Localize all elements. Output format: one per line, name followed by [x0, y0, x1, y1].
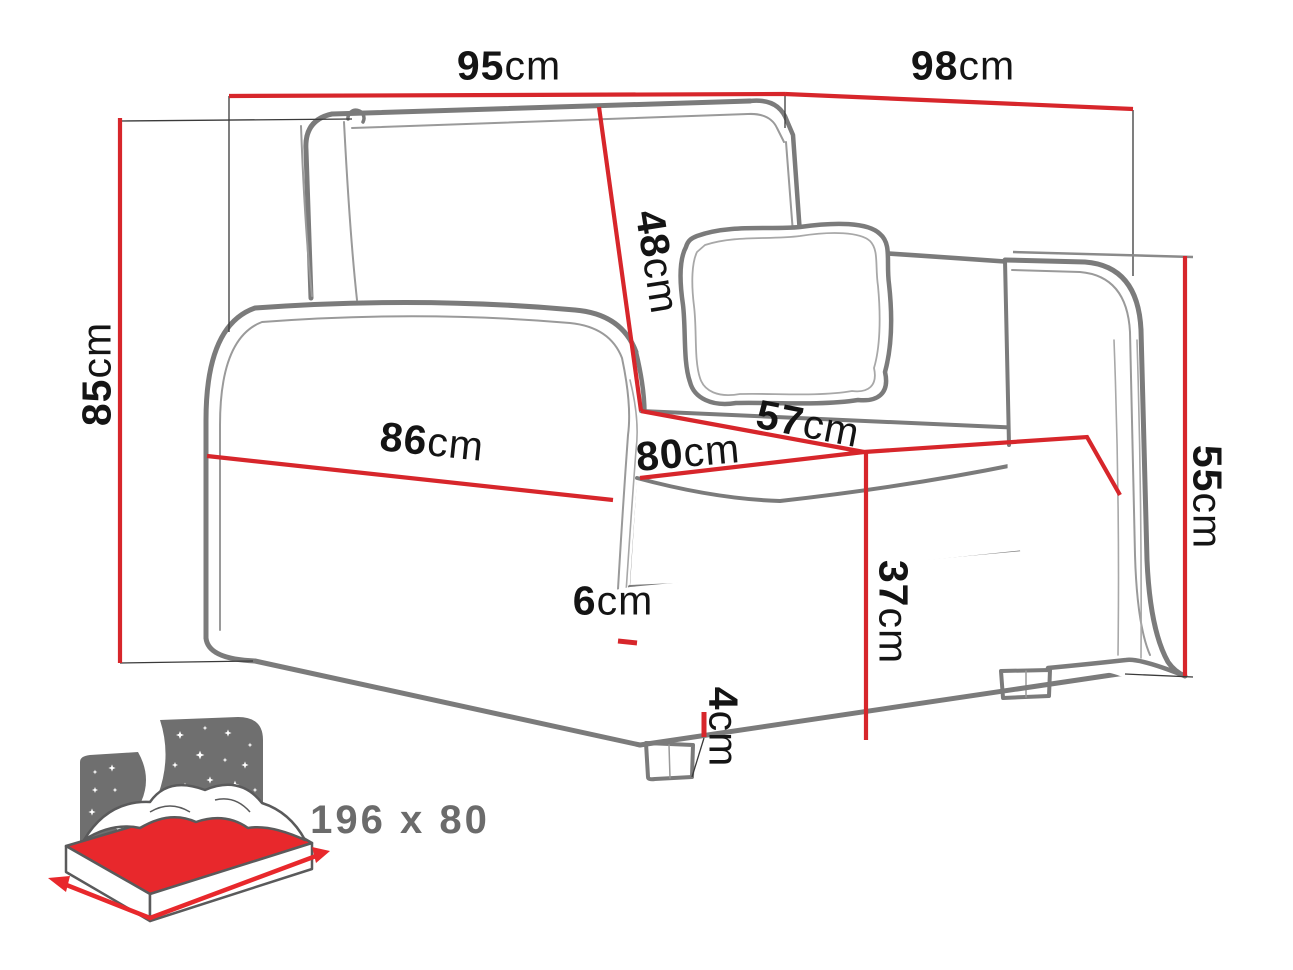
dim-total-height-label: 85cm	[77, 322, 118, 426]
dim-front-bottom-width-label: 86cm	[378, 416, 486, 468]
dim-side-gap-value: 6	[573, 578, 597, 624]
dim-seat-height-unit: cm	[871, 607, 917, 664]
dim-armrest-height-unit: cm	[1185, 492, 1231, 549]
dim-side-gap-unit: cm	[597, 578, 654, 624]
dim-seat-depth-label: 80cm	[634, 428, 741, 478]
dim-leg-height-label: 4cm	[703, 687, 744, 767]
dim-leg-height-value: 4	[701, 687, 747, 711]
dimension-line-front-width	[229, 94, 785, 96]
dim-leg-height-unit: cm	[701, 711, 747, 768]
dim-backrest-height-value: 48	[627, 207, 680, 261]
dim-front-width-unit: cm	[504, 43, 561, 89]
dim-seat-height-value: 37	[871, 560, 917, 608]
dim-front-bottom-width-unit: cm	[425, 418, 486, 470]
sleeping-dimensions-label: 196 x 80	[310, 800, 490, 840]
dim-total-height-unit: cm	[74, 322, 120, 379]
dim-total-height-value: 85	[74, 379, 120, 427]
dim-seat-depth-unit: cm	[681, 425, 741, 476]
dimension-tick-side-gap	[618, 641, 637, 643]
dim-armrest-height-value: 55	[1185, 445, 1231, 493]
furniture-dimension-diagram: 95cm 98cm 85cm 48cm 86cm 80cm 57cm 55cm …	[0, 0, 1293, 970]
dimension-line-side-depth	[785, 94, 1133, 109]
dim-armrest-height-label: 55cm	[1187, 445, 1228, 549]
dim-front-width-value: 95	[457, 43, 505, 89]
pillow	[681, 224, 891, 404]
dim-seat-height-label: 37cm	[873, 560, 914, 664]
sofa-technical-drawing	[0, 0, 1293, 970]
dim-side-depth-value: 98	[911, 43, 959, 89]
dim-side-gap-label: 6cm	[573, 581, 653, 622]
bed-with-stars-icon	[48, 717, 330, 921]
dim-side-depth-label: 98cm	[911, 46, 1015, 87]
dim-front-bottom-width-value: 86	[378, 413, 430, 464]
dim-side-depth-unit: cm	[958, 43, 1015, 89]
dim-seat-depth-value: 80	[634, 430, 685, 480]
dim-front-width-label: 95cm	[457, 46, 561, 87]
dim-backrest-height-unit: cm	[634, 254, 688, 317]
